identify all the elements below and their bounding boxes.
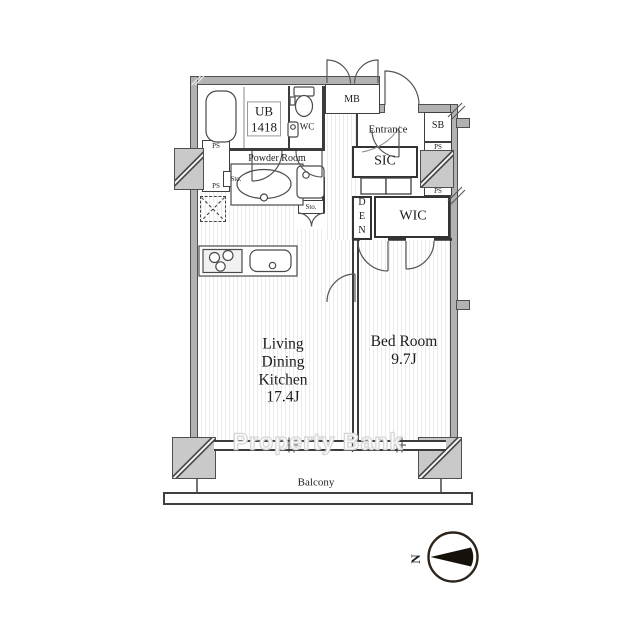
label-sb: SB	[432, 120, 444, 132]
bathtub	[206, 91, 236, 142]
vanity-drain	[261, 194, 268, 201]
burner-3	[216, 262, 225, 271]
watermark: Property Bank	[233, 429, 403, 456]
label-ps-left-bottom: PS	[212, 182, 220, 190]
kitchen-fixtures	[199, 246, 297, 276]
storage-door-left	[298, 213, 312, 227]
label-wic: WIC	[399, 209, 426, 226]
mb-door-left	[327, 60, 351, 84]
utility-sink	[297, 166, 324, 198]
label-mb: MB	[344, 94, 360, 106]
label-ub: UB 1418	[247, 101, 281, 136]
label-wc: WC	[300, 122, 315, 133]
refrigerator-x-mark	[202, 198, 225, 221]
label-ldk: Living Dining Kitchen 17.4J	[258, 335, 307, 406]
burner-2	[223, 251, 233, 261]
sic-compartments	[361, 178, 411, 194]
label-sto-left: Sto.	[230, 175, 241, 183]
label-sic: SIC	[374, 154, 396, 171]
mb-door-right	[355, 60, 379, 84]
label-entrance: Entrance	[368, 123, 407, 136]
label-powder-room: Powder Room	[248, 153, 306, 165]
wic-door	[406, 241, 434, 269]
compass	[426, 528, 480, 586]
label-sto-hall: Sto.	[305, 203, 316, 211]
entrance-door	[385, 71, 419, 105]
label-den: DEN	[353, 198, 371, 238]
toilet-bowl	[296, 96, 313, 117]
toilet-tank	[294, 87, 314, 96]
bedroom-door	[358, 241, 388, 271]
label-balcony: Balcony	[298, 476, 335, 489]
ldk-door	[327, 274, 355, 302]
floorplan-canvas: UB 1418 WC MB Entrance SB Powder Room SI…	[0, 0, 640, 639]
storage-door-right	[312, 213, 326, 227]
label-ps-right-top: PS	[434, 143, 442, 151]
toilet-flush-handle	[290, 97, 295, 105]
plan-linework	[0, 0, 640, 639]
label-bedroom: Bed Room 9.7J	[371, 333, 438, 369]
burner-1	[210, 253, 220, 263]
compass-north-label: N	[408, 554, 424, 563]
label-ps-right-bottom: PS	[434, 187, 442, 195]
label-ps-left-top: PS	[212, 142, 220, 150]
